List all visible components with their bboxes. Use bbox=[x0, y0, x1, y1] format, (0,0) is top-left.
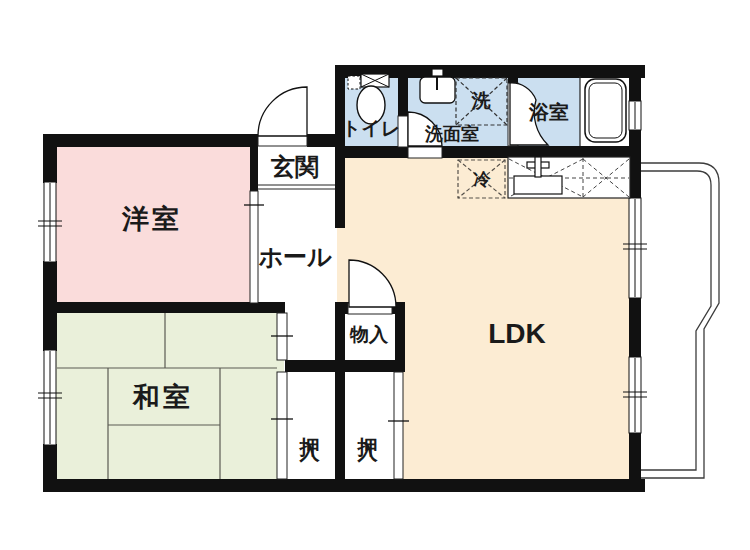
washroom-doorway bbox=[408, 147, 442, 158]
toilet-label: トイレ bbox=[342, 119, 400, 138]
kitchen-sink-icon bbox=[514, 176, 562, 194]
sliding-door bbox=[250, 191, 258, 303]
entrance-label: 玄関 bbox=[271, 155, 319, 179]
hall-label: ホール bbox=[258, 245, 331, 269]
wall bbox=[395, 302, 405, 372]
wall bbox=[250, 145, 258, 191]
japanese-room-label: 和室 bbox=[133, 384, 193, 411]
wall bbox=[335, 302, 345, 480]
refrigerator-label: 冷 bbox=[474, 171, 491, 188]
closet-right-label: 押入 bbox=[358, 421, 378, 427]
wall bbox=[398, 65, 408, 116]
wall bbox=[629, 298, 641, 357]
balcony-outline bbox=[641, 163, 719, 478]
sliding-door bbox=[394, 372, 403, 479]
wall bbox=[629, 65, 641, 101]
wall bbox=[629, 433, 641, 479]
washing-machine-label: 洗 bbox=[472, 91, 491, 110]
ldk-label: LDK bbox=[488, 320, 546, 348]
wall bbox=[43, 444, 57, 492]
entrance-door-arc bbox=[258, 87, 307, 136]
wall bbox=[335, 146, 641, 158]
sliding-door bbox=[277, 372, 287, 479]
closet-left-label: 押入 bbox=[300, 421, 320, 427]
wall bbox=[43, 134, 57, 183]
bathroom-label: 浴室 bbox=[529, 102, 569, 122]
wall bbox=[43, 302, 285, 313]
washroom-label: 洗面室 bbox=[425, 125, 479, 143]
floor-plan-drawing bbox=[0, 0, 750, 550]
wall bbox=[508, 65, 518, 83]
wall bbox=[43, 479, 645, 492]
wall bbox=[43, 261, 57, 351]
storage-label: 物入 bbox=[350, 325, 388, 344]
bathtub-icon bbox=[580, 76, 626, 146]
wall bbox=[629, 130, 641, 198]
wall bbox=[335, 65, 345, 228]
western-room-label: 洋室 bbox=[122, 206, 182, 233]
kitchen-faucet-icon bbox=[535, 157, 541, 177]
floor-plan: 洋室 和室 LDK 玄関 ホール トイレ 洗面室 洗 浴室 物入 押入 押入 冷 bbox=[0, 0, 750, 550]
wall bbox=[43, 134, 258, 147]
hall-alcove-floor bbox=[285, 304, 335, 362]
kitchen-counter bbox=[508, 157, 630, 198]
